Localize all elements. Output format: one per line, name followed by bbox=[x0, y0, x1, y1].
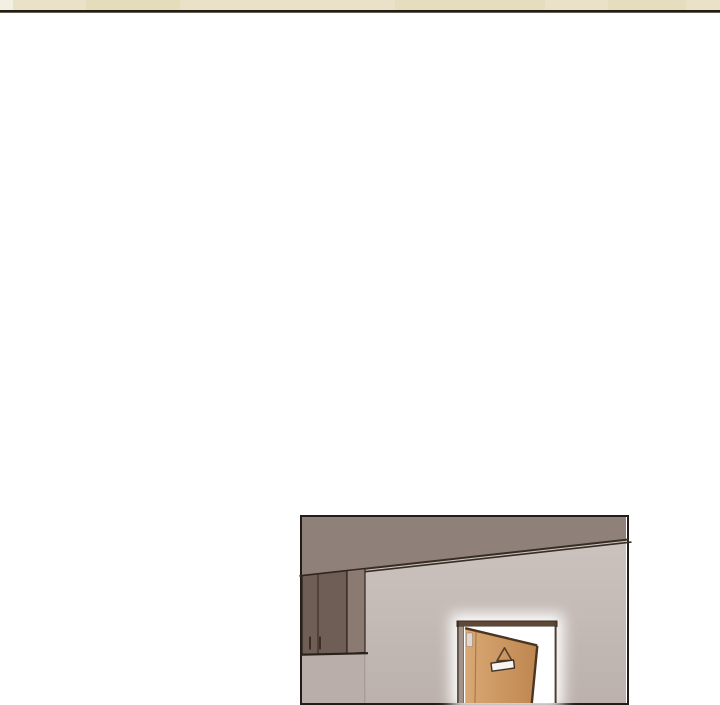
door-hinge bbox=[467, 633, 473, 647]
panel-gutter bbox=[0, 13, 720, 515]
cabinet-front bbox=[302, 571, 347, 655]
strip-shade-1 bbox=[86, 0, 180, 10]
cabinet-handle-right bbox=[319, 637, 321, 650]
cabinet-handle-left bbox=[309, 637, 311, 650]
door-frame-top bbox=[457, 621, 557, 627]
side-wall bbox=[302, 653, 365, 703]
strip-highlight-left bbox=[0, 0, 13, 10]
panel-scene bbox=[302, 517, 636, 703]
comic-page bbox=[0, 0, 720, 700]
strip-shade-3 bbox=[608, 0, 686, 10]
door-frame-left-face bbox=[459, 627, 464, 704]
cabinet-bottom-edge bbox=[302, 653, 368, 655]
comic-panel bbox=[300, 515, 629, 705]
strip-shade-2 bbox=[395, 0, 545, 10]
cabinet-side bbox=[347, 569, 365, 654]
previous-panel-strip bbox=[0, 0, 720, 13]
